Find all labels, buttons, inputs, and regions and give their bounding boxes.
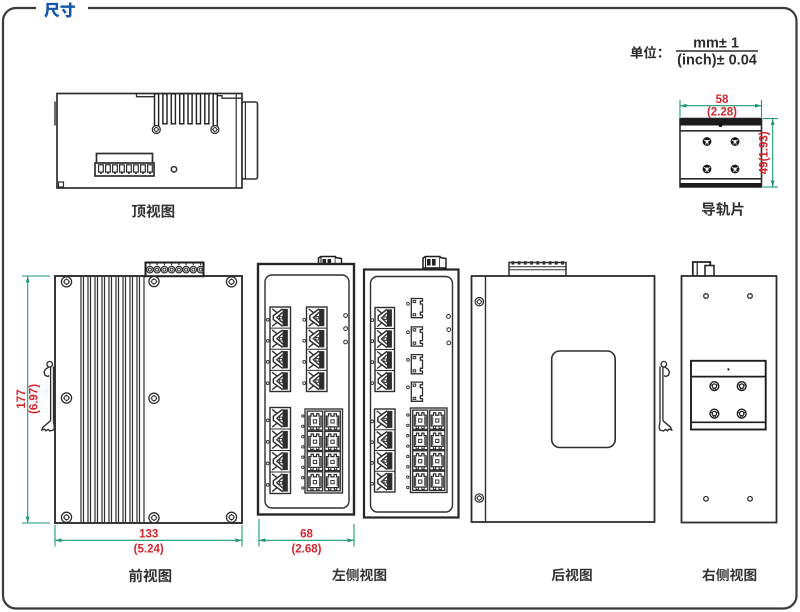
svg-text:49(1.93): 49(1.93) xyxy=(759,131,771,174)
svg-text:(inch)± 0.04: (inch)± 0.04 xyxy=(677,53,757,69)
svg-text:58: 58 xyxy=(716,94,729,106)
svg-text:(2.28): (2.28) xyxy=(707,107,737,119)
svg-text:133: 133 xyxy=(139,529,158,541)
svg-text:mm± 1: mm± 1 xyxy=(693,36,739,52)
svg-text:(6.97): (6.97) xyxy=(29,384,41,414)
svg-text:68: 68 xyxy=(300,529,313,541)
svg-text:(2.68): (2.68) xyxy=(291,544,321,556)
svg-text:177: 177 xyxy=(16,389,28,408)
svg-text:(5.24): (5.24) xyxy=(134,544,164,556)
